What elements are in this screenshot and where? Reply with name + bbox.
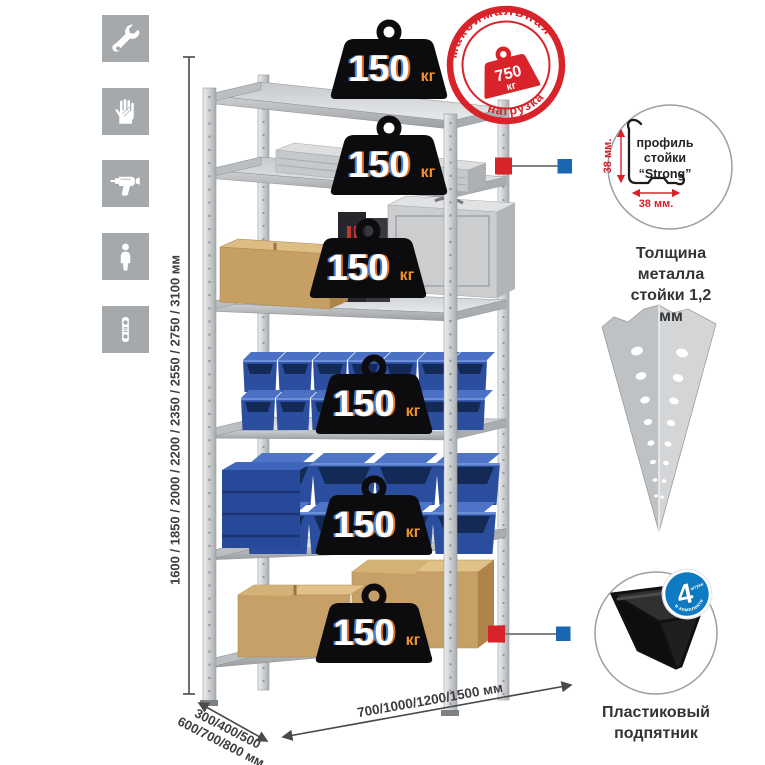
load-unit: кг xyxy=(400,267,415,284)
load-value: 150 xyxy=(333,612,395,653)
height-dimension-label: 1600 / 1850 / 2000 / 2200 / 2350 / 2550 … xyxy=(168,255,183,585)
caption-line: стойки 1,2 мм xyxy=(624,285,718,327)
profile-label-3: “Strong” xyxy=(639,167,692,181)
profile-label-2: стойки xyxy=(644,151,686,165)
load-unit: кг xyxy=(406,632,421,649)
load-unit: кг xyxy=(406,524,421,541)
product-infographic: 150 кг 150 кг 150 кг 150 кг 150 кг 150 к… xyxy=(0,0,765,765)
blue-marker xyxy=(556,627,571,642)
load-unit: кг xyxy=(406,403,421,420)
profile-dim-horizontal: 38 мм. xyxy=(639,198,674,210)
upright-post-graphic xyxy=(602,305,716,532)
front-left-post xyxy=(200,88,218,706)
back-right-post xyxy=(498,100,509,700)
foot-detail: 4 штуки в комплекте xyxy=(595,565,717,694)
stamp-weight-icon: 750 кг xyxy=(474,42,540,99)
caption-line: Толщина металла xyxy=(624,243,718,285)
profile-detail: 38 мм. 38 мм. профиль стойки “Strong” xyxy=(602,105,732,229)
shelving-scene: 150 кг 150 кг 150 кг 150 кг 150 кг 150 к… xyxy=(0,0,765,765)
load-value: 150 xyxy=(348,48,410,89)
metal-thickness-caption: Толщина металла стойки 1,2 мм xyxy=(624,243,718,327)
profile-dim-vertical: 38 мм. xyxy=(602,139,614,174)
caption-line: Пластиковый xyxy=(602,702,710,723)
load-unit: кг xyxy=(421,68,436,85)
load-value: 150 xyxy=(333,383,395,424)
load-value: 150 xyxy=(327,247,389,288)
load-unit: кг xyxy=(421,164,436,181)
red-marker xyxy=(495,158,512,175)
plastic-foot-caption: Пластиковый подпятник xyxy=(602,702,710,744)
load-value: 150 xyxy=(348,144,410,185)
load-value: 150 xyxy=(333,504,395,545)
caption-line: подпятник xyxy=(602,723,710,744)
profile-label-1: профиль xyxy=(636,136,693,150)
red-marker xyxy=(488,626,505,643)
front-right-post xyxy=(441,114,459,716)
blue-marker xyxy=(558,159,573,174)
